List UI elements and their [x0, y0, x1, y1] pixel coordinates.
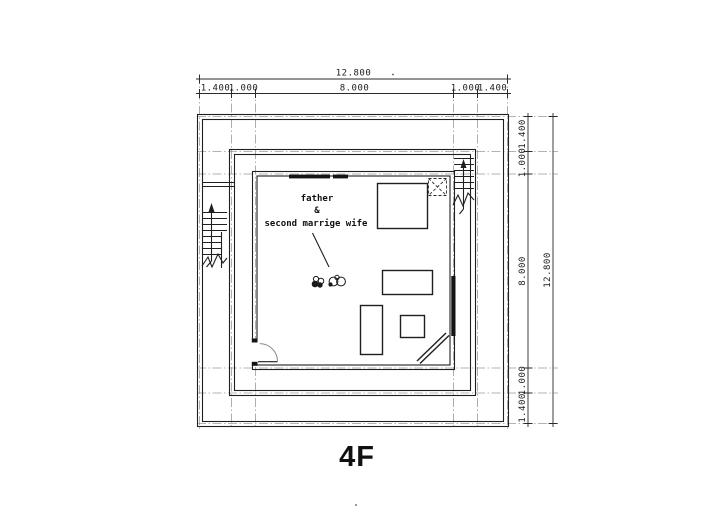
room-note: father & second marrige wife — [265, 194, 369, 229]
bed — [378, 184, 428, 229]
dim-top-seg-3: 8.000 — [340, 84, 370, 94]
stair-arrow-head — [209, 203, 215, 212]
right-wall-fill — [451, 276, 455, 336]
room-note-line1: father — [301, 194, 334, 204]
dim-right: 1.400 1.000 8.000 1.000 1.400 12.800 — [518, 113, 558, 427]
leader-line — [313, 233, 330, 267]
door-jamb-top — [252, 339, 258, 343]
dim-top-seg-1: 1.400 — [201, 84, 231, 94]
floorplan-page: 12.800 1.400 1.000 8.000 1.000 1.400 1.4… — [0, 0, 720, 523]
door-opening — [251, 343, 259, 363]
desk — [361, 306, 383, 355]
dim-top-seg-2: 1.000 — [229, 84, 259, 94]
dim-top: 12.800 1.400 1.000 8.000 1.000 1.400 — [196, 69, 511, 99]
stair-break-line — [202, 254, 227, 267]
floor-label: 4F — [339, 441, 375, 473]
door-jamb-bottom — [252, 362, 258, 366]
table — [383, 271, 433, 295]
dim-right-seg-3: 8.000 — [518, 256, 528, 286]
dim-top-total: 12.800 — [336, 69, 372, 79]
dim-right-seg-2: 1.000 — [518, 148, 528, 178]
room-note-line3: second marrige wife — [265, 218, 369, 229]
stool — [401, 316, 425, 338]
occupant-icons — [312, 275, 345, 287]
top-wall-fill-2 — [333, 175, 348, 179]
scan-artifact — [392, 74, 394, 76]
room-note-line2: & — [314, 206, 320, 216]
furniture — [361, 184, 450, 364]
scan-artifact — [355, 504, 357, 506]
left-staircase — [202, 203, 227, 268]
top-wall-fill — [289, 175, 330, 179]
ladder-diagonal — [420, 336, 449, 364]
dim-right-seg-1: 1.400 — [518, 119, 528, 149]
dim-right-seg-4: 1.000 — [518, 366, 528, 396]
dim-top-seg-5: 1.400 — [478, 84, 508, 94]
dim-right-total: 12.800 — [543, 252, 553, 288]
outer-wall — [198, 115, 509, 427]
void-opening-dashed — [429, 179, 447, 196]
dim-right-seg-5: 1.400 — [518, 393, 528, 423]
floor-plan-drawing: 12.800 1.400 1.000 8.000 1.000 1.400 1.4… — [0, 0, 720, 523]
dim-top-seg-4: 1.000 — [451, 84, 481, 94]
door-swing-arc — [260, 344, 278, 362]
stair-arrow-head — [461, 159, 467, 168]
